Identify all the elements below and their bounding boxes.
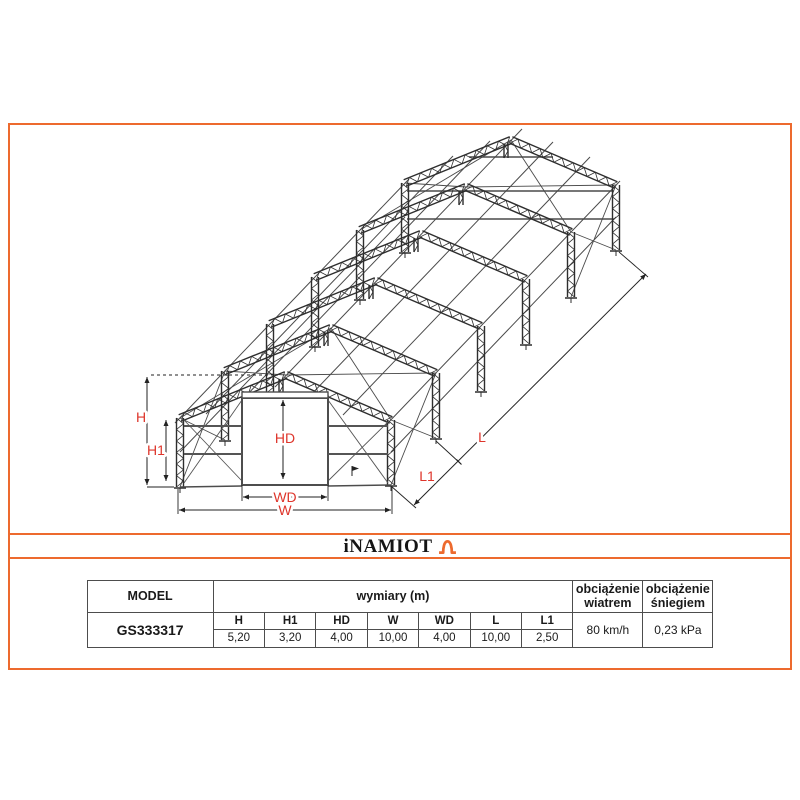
dim-header-cell: L xyxy=(470,612,521,629)
dim-header-cell: H1 xyxy=(265,612,316,629)
dim-label-l1: L1 xyxy=(419,468,435,484)
anchor-flag-mark xyxy=(352,466,359,476)
dim-value-cell: 10,00 xyxy=(367,629,418,647)
dimensions-header: wymiary (m) xyxy=(213,580,573,612)
dim-value-cell: 5,20 xyxy=(213,629,264,647)
dim-value-cell: 4,00 xyxy=(419,629,470,647)
dim-header-cell: H xyxy=(213,612,264,629)
dim-value-cell: 10,00 xyxy=(470,629,521,647)
drawing-area: H H1 HD WD W L L1 xyxy=(10,125,790,533)
spec-table-area: MODEL wymiary (m) obciążenie wiatrem obc… xyxy=(10,559,790,668)
brand-bar: iNAMIOT xyxy=(10,533,790,559)
page: H H1 HD WD W L L1 iNAMIOT xyxy=(0,0,800,800)
dim-value-cell: 3,20 xyxy=(265,629,316,647)
dim-label-w: W xyxy=(278,502,292,518)
dim-header-cell: WD xyxy=(419,612,470,629)
snow-load-value: 0,23 kPa xyxy=(643,612,713,647)
model-value: GS333317 xyxy=(87,612,213,647)
brand-name: iNAMIOT xyxy=(344,537,433,556)
dim-header-cell: L1 xyxy=(521,612,572,629)
dim-label-l: L xyxy=(478,429,486,445)
tent-icon xyxy=(438,538,457,555)
model-header: MODEL xyxy=(87,580,213,612)
wind-load-value: 80 km/h xyxy=(573,612,643,647)
snow-load-header: obciążenie śniegiem xyxy=(643,580,713,612)
tent-structure-drawing: H H1 HD WD W L L1 xyxy=(10,125,790,533)
spec-sheet-panel: H H1 HD WD W L L1 iNAMIOT xyxy=(8,123,792,670)
spec-table: MODEL wymiary (m) obciążenie wiatrem obc… xyxy=(87,580,714,648)
door-header xyxy=(242,392,328,398)
dim-label-h1: H1 xyxy=(147,442,165,458)
dim-value-cell: 2,50 xyxy=(521,629,572,647)
wind-load-header: obciążenie wiatrem xyxy=(573,580,643,612)
dim-header-cell: W xyxy=(367,612,418,629)
dim-label-hd: HD xyxy=(275,430,295,446)
dim-header-cell: HD xyxy=(316,612,367,629)
dim-value-cell: 4,00 xyxy=(316,629,367,647)
dim-label-h: H xyxy=(136,409,146,425)
